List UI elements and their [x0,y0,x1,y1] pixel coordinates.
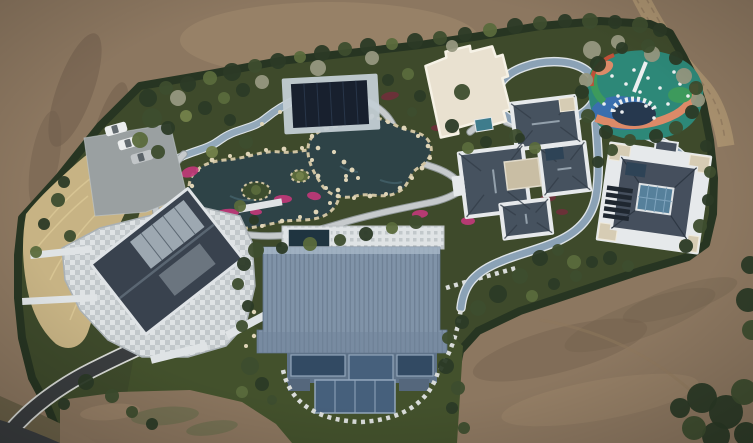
aerial-photo-canvas [0,0,753,443]
aerial-photo: Top-down aerial photo of a walled garden… [0,0,753,443]
vignette [0,0,753,443]
